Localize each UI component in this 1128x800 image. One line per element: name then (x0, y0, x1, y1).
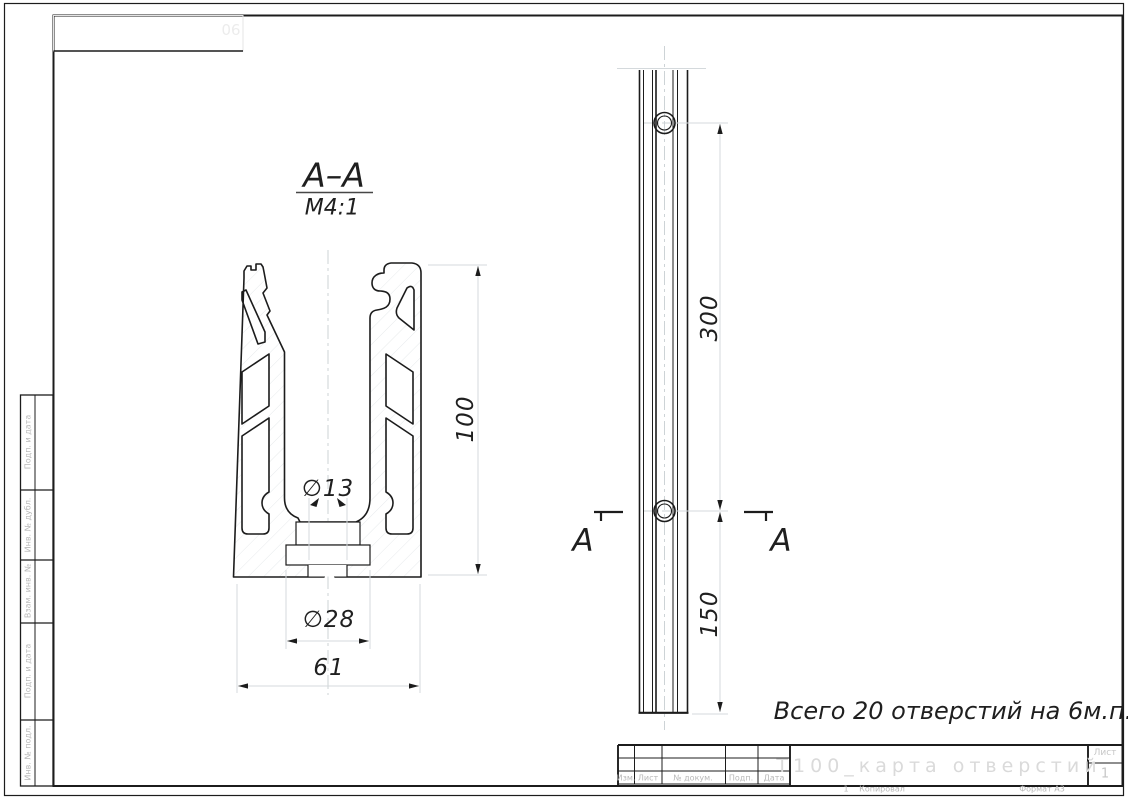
holes-note: Всего 20 отверстий на 6м.п. (774, 697, 1128, 725)
drawing-geometry (0, 0, 1128, 800)
footer-format-label: Формат А3 (1019, 785, 1065, 794)
drawing-sheet: А–А М4:1 100 ∅13 ∅28 61 300 150 А А Всег… (0, 0, 1128, 800)
dim-channel-28: ∅28 (303, 607, 355, 633)
section-cut-marks (594, 512, 773, 521)
dim-spacing-300: 300 (697, 295, 723, 342)
tb-col-podp: Подп. (729, 774, 753, 783)
profile-side-view (617, 46, 706, 730)
sheet-label: Лист (1094, 748, 1117, 758)
section-view-label: А–А (303, 156, 365, 195)
title-block-title: Т100_карта отверстий (776, 755, 1101, 777)
corner-stamp-box (54, 16, 244, 52)
margin-field-podp-data-2: Подп. и дата (24, 644, 33, 699)
dim-height-100: 100 (453, 396, 479, 443)
page-frame (5, 4, 1124, 796)
section-letter-left: А (572, 523, 593, 559)
dim-offset-150: 150 (697, 591, 723, 638)
dim-hole-13: ∅13 (302, 476, 354, 502)
section-letter-right: А (770, 523, 791, 559)
corner-stamp-text: 90 (221, 20, 240, 38)
tb-col-data: Дата (764, 774, 785, 783)
tb-col-docnum: № докум. (673, 774, 712, 783)
margin-field-vzam-inv: Взам. инв. № (24, 564, 33, 618)
section-scale-label: М4:1 (305, 196, 359, 221)
footer-copy-num: 1 (843, 785, 848, 794)
dim-width-61: 61 (313, 655, 344, 681)
sheet-number: 1 (1101, 767, 1109, 782)
margin-field-podp-data-1: Подп. и дата (24, 415, 33, 470)
margin-field-inv-podl: Инв. № подл. (24, 725, 33, 780)
margin-field-inv-dubl: Инв. № дубл. (24, 498, 33, 553)
footer-copied-label: Копировал (859, 785, 905, 794)
tb-col-list: Лист (638, 774, 658, 783)
tb-col-izm: Изм. (617, 774, 636, 783)
